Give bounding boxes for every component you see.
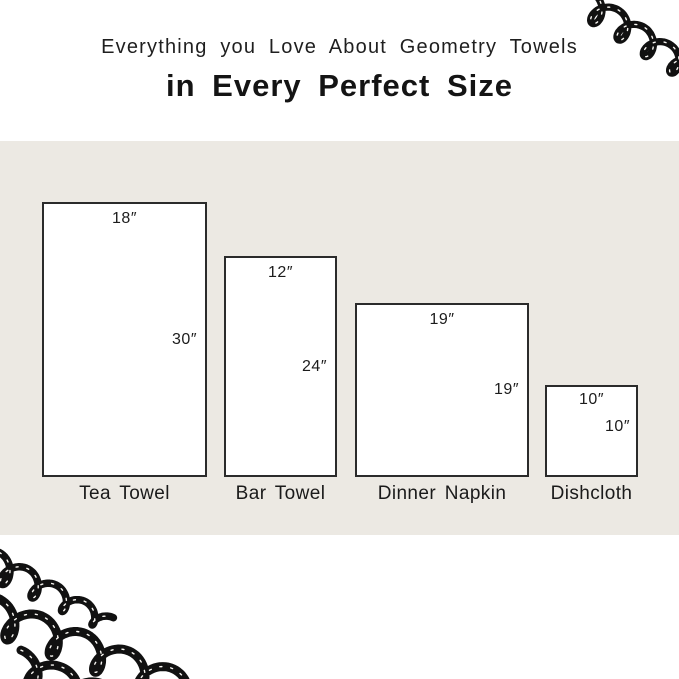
marker-scribble-bottom-left-icon bbox=[0, 535, 265, 679]
towel-box-dishcloth: 10″ 10″ bbox=[545, 385, 638, 477]
height-dimension-label: 19″ bbox=[494, 381, 519, 399]
towel-box-dinner-napkin: 19″ 19″ bbox=[355, 303, 529, 477]
infographic-canvas: Everything you Love About Geometry Towel… bbox=[0, 0, 679, 679]
towel-box-tea-towel: 18″ 30″ bbox=[42, 202, 207, 477]
towel-name-label: Dinner Napkin bbox=[335, 483, 549, 505]
width-dimension-label: 10″ bbox=[547, 391, 636, 409]
page-subtitle: in Every Perfect Size bbox=[0, 68, 679, 104]
width-dimension-label: 12″ bbox=[226, 264, 335, 282]
width-dimension-label: 19″ bbox=[357, 311, 527, 329]
height-dimension-label: 30″ bbox=[172, 331, 197, 349]
page-title: Everything you Love About Geometry Towel… bbox=[0, 36, 679, 59]
towel-name-label: Dishcloth bbox=[525, 483, 658, 505]
towel-box-bar-towel: 12″ 24″ bbox=[224, 256, 337, 477]
width-dimension-label: 18″ bbox=[44, 210, 205, 228]
height-dimension-label: 24″ bbox=[302, 358, 327, 376]
height-dimension-label: 10″ bbox=[605, 418, 630, 436]
towel-name-label: Tea Towel bbox=[22, 483, 227, 505]
